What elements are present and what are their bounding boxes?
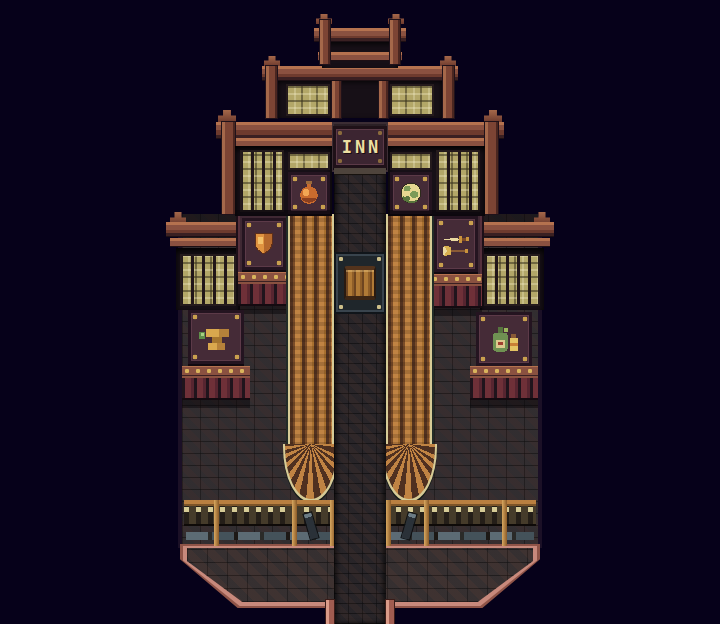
armor-shop-sign (242, 218, 286, 270)
finial-cap (440, 56, 456, 66)
weapon-shop-studband (430, 274, 482, 284)
tier3-left-transom (288, 152, 330, 170)
weapon-shop-slats (430, 284, 482, 308)
potion-shop-sign (476, 312, 532, 366)
tier3-right-transom (390, 152, 432, 170)
right-slatband (470, 376, 538, 400)
bottles-icon (486, 322, 522, 357)
smithy-sign (188, 310, 244, 364)
right-slatband-top (470, 366, 538, 376)
support-post (386, 500, 391, 546)
right-slatband-shadow (470, 400, 538, 408)
tier3-left-window (240, 150, 284, 212)
tier4-right-beam2 (478, 238, 550, 246)
tier2-left-post (266, 66, 277, 118)
inn-sign: INN (333, 126, 387, 168)
tier1-right-post (390, 20, 400, 64)
anvil-icon (198, 320, 234, 355)
tier2-right-post (443, 66, 454, 118)
finial-cap (484, 110, 502, 122)
crystal-orb-icon (398, 180, 424, 206)
sword-and-axe-icon (442, 226, 469, 262)
tier4-right-beam (476, 222, 554, 236)
tier3-right-post (485, 122, 498, 214)
tier4-left-beam (166, 222, 244, 236)
walkway-rail-right (386, 600, 394, 624)
finial-cap (264, 56, 280, 66)
armor-shop-studband (238, 272, 290, 282)
tier3-bottom-shadow-right (388, 210, 485, 216)
armor-shop-slats (238, 282, 290, 306)
support-post (214, 500, 219, 546)
potion-flask-icon (296, 180, 322, 206)
walkway-rail-left (326, 600, 334, 624)
support-post (502, 500, 507, 546)
tier4-left-beam2 (170, 238, 242, 246)
center-walkway (334, 170, 386, 624)
tier3-bottom-shadow-left (235, 210, 332, 216)
tier2-left-window (286, 84, 330, 116)
weapon-shop-sign (434, 216, 478, 272)
tier3-left-post (222, 122, 235, 214)
tier4-right-window (484, 254, 540, 306)
tier2-right-window (390, 84, 434, 116)
right-awning (386, 214, 432, 454)
inn-lintel (334, 168, 386, 174)
tier2-beam (262, 66, 458, 80)
inn-sign-label: INN (342, 137, 382, 157)
game-viewport[interactable]: INN (0, 0, 720, 624)
tier2-mid-post-left (332, 78, 341, 118)
tier3-right-window (436, 150, 480, 212)
left-slatband (182, 376, 250, 400)
item-shop-sign (288, 172, 330, 214)
left-slatband-shadow (182, 400, 250, 408)
support-post (292, 500, 297, 546)
armor-shop-shadow (238, 306, 290, 314)
tier1-left-post (320, 20, 330, 64)
tier2-mid-post-right (379, 78, 388, 118)
left-slatband-top (182, 366, 250, 376)
support-post (424, 500, 429, 546)
finial-cap (218, 110, 236, 122)
shield-icon (250, 227, 277, 260)
weapon-shop-shadow (430, 308, 482, 316)
tier4-left-window (180, 254, 236, 306)
barrel (344, 266, 376, 300)
relic-shop-sign (390, 172, 432, 214)
left-awning (288, 214, 334, 454)
